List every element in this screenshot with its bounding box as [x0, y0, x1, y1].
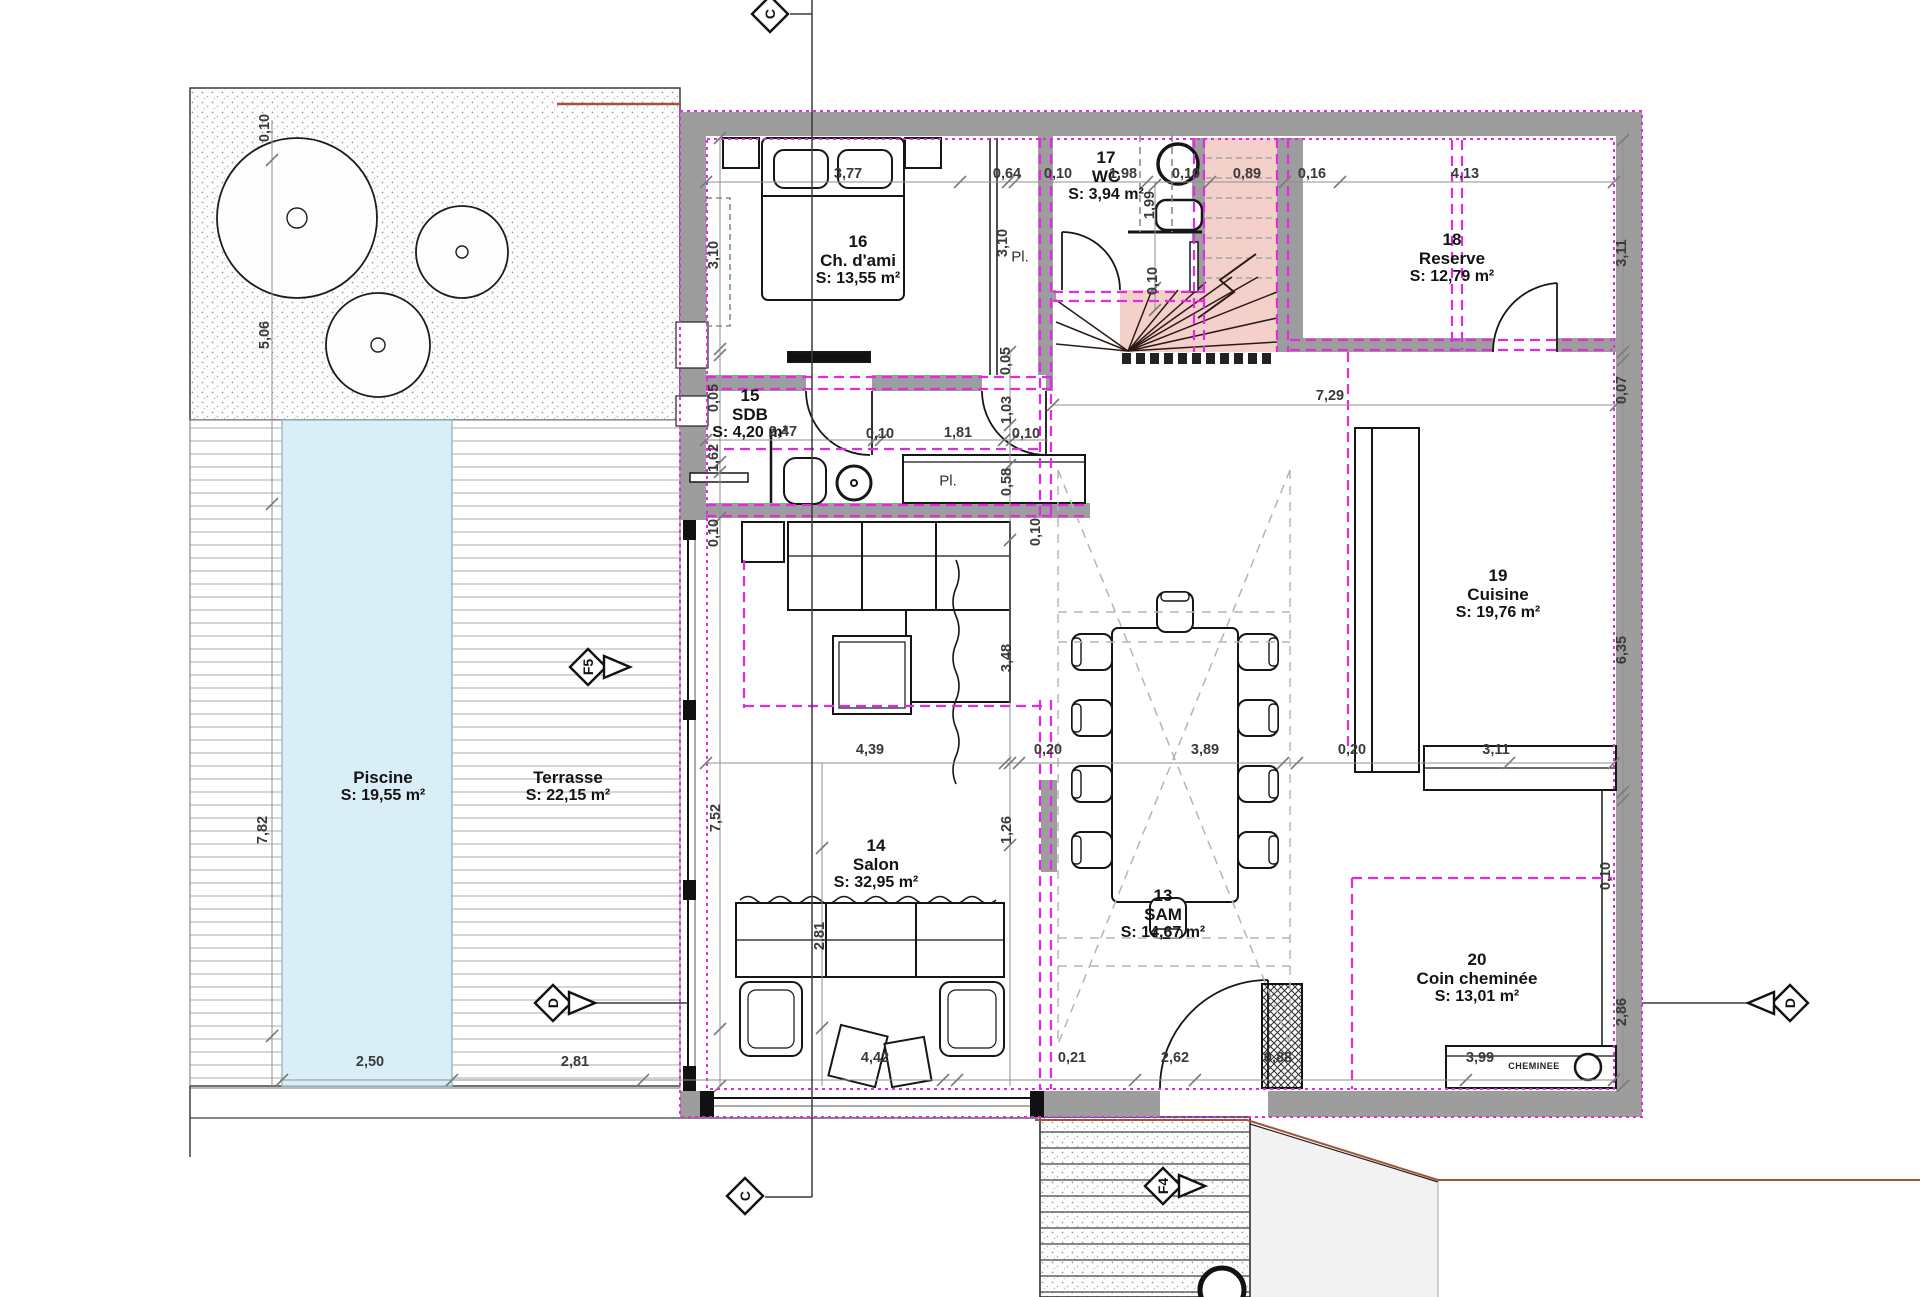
- dining-chair: [1072, 700, 1112, 736]
- dining-chair: [1238, 832, 1278, 868]
- sam-demolition-cross: [1058, 470, 1290, 1044]
- kitchen-furniture: [1355, 428, 1616, 1048]
- wardrobe-dashed: [706, 198, 730, 326]
- dining-chair: [1150, 898, 1186, 938]
- bottom-section-circle: [1200, 1268, 1244, 1297]
- living-room-furniture: [736, 522, 1010, 1087]
- left-glazing: [683, 520, 696, 1091]
- dining-chair: [1238, 766, 1278, 802]
- bottom-glazing: [700, 1091, 1044, 1117]
- dining-chair: [1238, 634, 1278, 670]
- floor-plan-page: 16Ch. d'amiS: 13,55 m²15SDBS: 4,20 m²17W…: [0, 0, 1920, 1297]
- bedroom-furniture: [706, 138, 997, 375]
- dining-chair: [1072, 766, 1112, 802]
- dining-chair: [1072, 832, 1112, 868]
- fireplace-area: [1262, 984, 1616, 1088]
- fireplace-flue-circle: [1575, 1054, 1601, 1080]
- floor-plan-drawing: [0, 0, 1920, 1297]
- dining-chair: [1072, 634, 1112, 670]
- dining-chair: [1238, 700, 1278, 736]
- wc-fixtures: [1128, 135, 1202, 292]
- radiator: [788, 352, 870, 362]
- stair-section-squares: [1122, 353, 1271, 364]
- bathroom-fixtures: [690, 432, 871, 504]
- exterior-stair: [1040, 1117, 1438, 1297]
- pool: [282, 420, 452, 1086]
- dining-table: [1112, 628, 1238, 902]
